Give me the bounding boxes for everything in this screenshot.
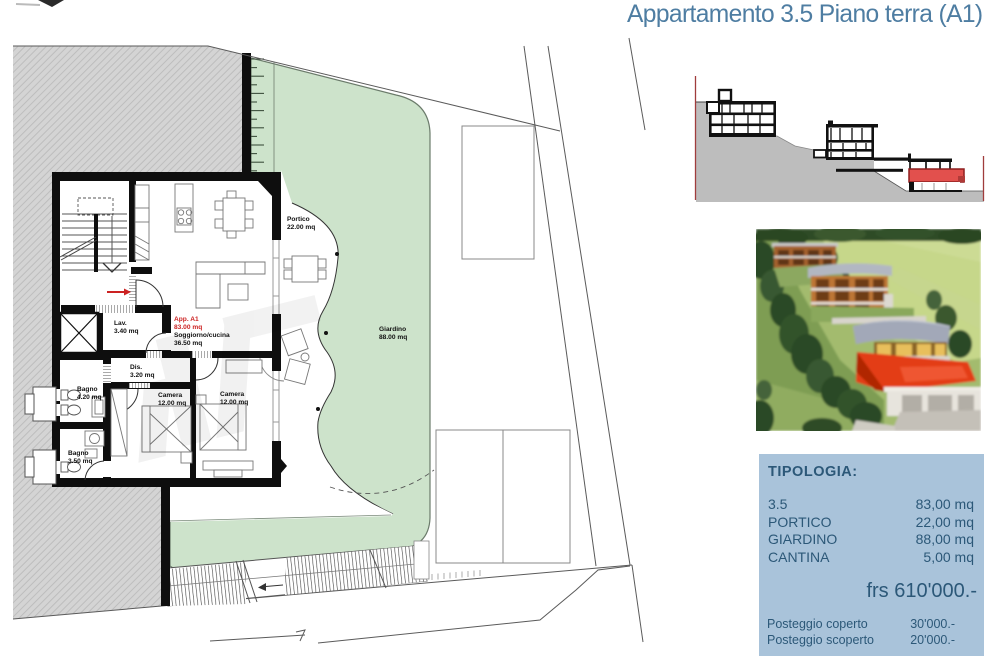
- svg-text:Camera: Camera: [220, 391, 245, 398]
- svg-text:App. A1: App. A1: [174, 316, 199, 323]
- svg-text:36.50 mq: 36.50 mq: [174, 340, 202, 347]
- svg-text:Camera: Camera: [158, 392, 183, 399]
- svg-text:Bagno: Bagno: [77, 386, 98, 393]
- svg-text:83.00 mq: 83.00 mq: [174, 324, 202, 331]
- svg-text:Giardino: Giardino: [379, 326, 406, 333]
- svg-text:Soggiorno/cucina: Soggiorno/cucina: [174, 332, 230, 339]
- svg-text:Dis.: Dis.: [130, 364, 142, 371]
- svg-text:4.20 mq: 4.20 mq: [77, 394, 102, 401]
- svg-text:3.50 mq: 3.50 mq: [68, 458, 93, 465]
- svg-text:Bagno: Bagno: [68, 450, 89, 457]
- svg-text:12.00 mq: 12.00 mq: [220, 399, 248, 406]
- svg-text:3.20 mq: 3.20 mq: [130, 372, 155, 379]
- svg-text:Lav.: Lav.: [114, 320, 127, 327]
- svg-text:12.00 mq: 12.00 mq: [158, 400, 186, 407]
- svg-text:Portico: Portico: [287, 216, 310, 223]
- svg-text:88.00 mq: 88.00 mq: [379, 334, 407, 341]
- svg-text:3.40 mq: 3.40 mq: [114, 328, 139, 335]
- svg-text:22.00 mq: 22.00 mq: [287, 224, 315, 231]
